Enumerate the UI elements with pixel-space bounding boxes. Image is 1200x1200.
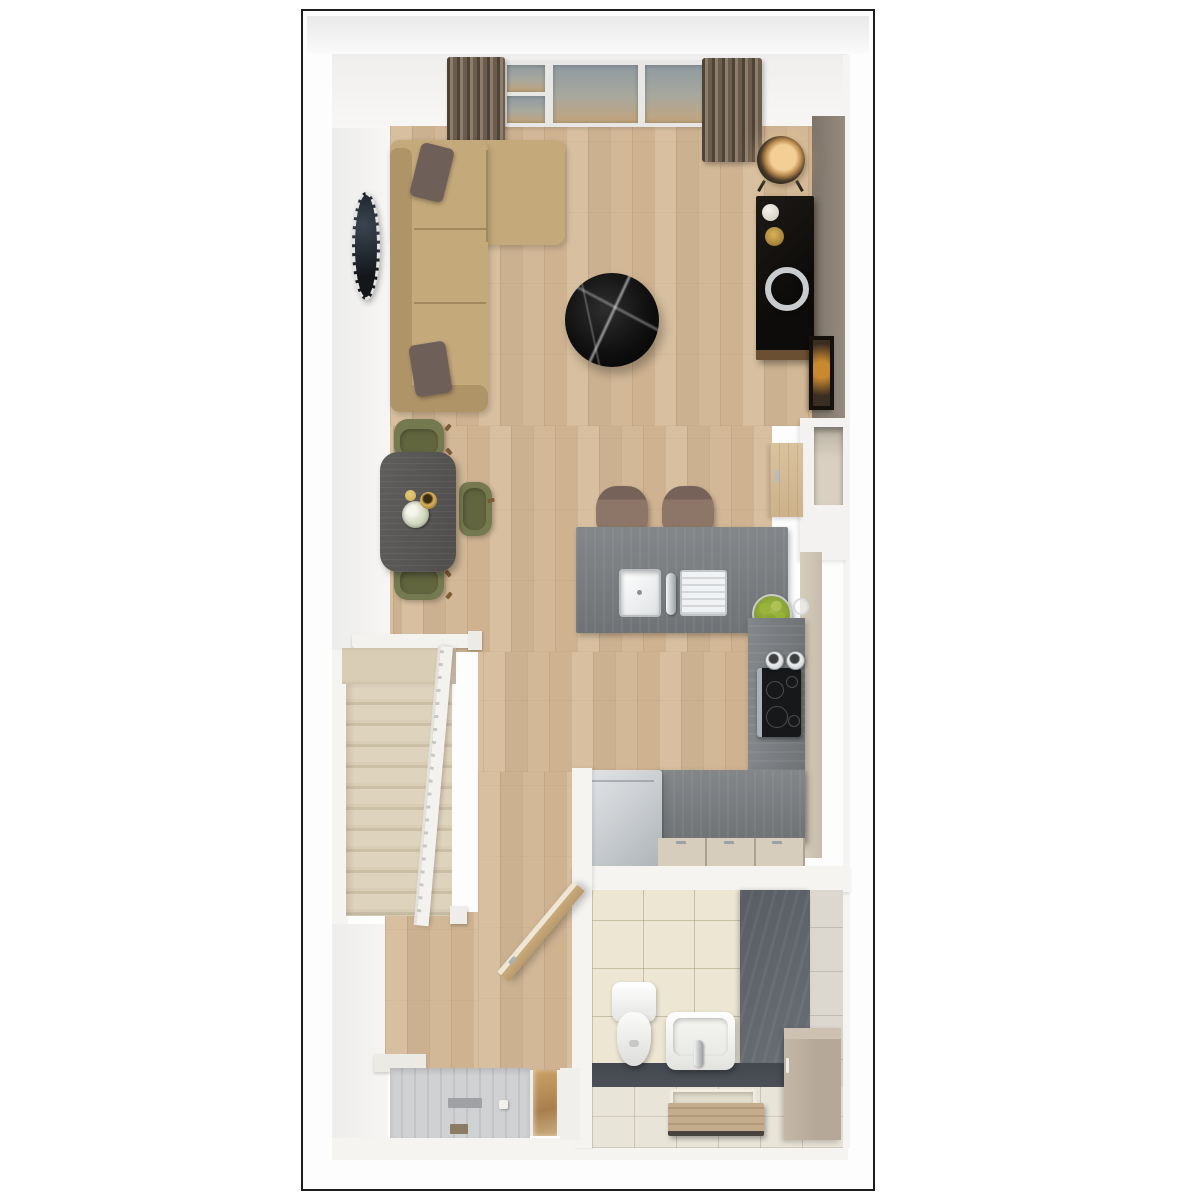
duckboard-mat — [668, 1103, 764, 1136]
toilet-flush-button — [629, 1040, 639, 1047]
sink-drainer — [680, 570, 727, 616]
cabinet-handle — [724, 841, 734, 844]
hob-burner — [766, 706, 788, 728]
throw-pillow — [408, 340, 453, 397]
hob-burner — [788, 715, 800, 727]
floor-lamp — [757, 136, 805, 184]
decor-ring — [765, 267, 809, 311]
washing-machine-lid-seam — [590, 780, 654, 782]
stair-rail-top — [352, 634, 480, 648]
door-handle — [508, 956, 517, 965]
sofa-cushion-seam — [414, 228, 486, 230]
sofa-backrest — [390, 148, 412, 402]
washbasin-tap — [694, 1040, 703, 1067]
mat-inset — [450, 1124, 468, 1134]
cabinet-handle — [676, 841, 686, 844]
mat-object — [499, 1100, 508, 1109]
window-pane — [507, 96, 545, 123]
curtain-right — [702, 58, 762, 162]
water-glass — [793, 598, 809, 615]
toilet-seat — [617, 1012, 651, 1066]
glazed-side-panel — [530, 1070, 560, 1136]
coffee-table — [565, 273, 659, 367]
newel-post — [450, 906, 467, 924]
bathroom-wall-top — [572, 866, 850, 892]
cabinet-handle — [775, 470, 779, 483]
washing-machine — [584, 770, 662, 868]
wall-mirror — [352, 192, 380, 300]
sofa-cushion-seam — [486, 150, 488, 242]
dining-chair-seat — [400, 569, 438, 594]
sofa-cushion-seam — [414, 302, 486, 304]
kitchen-floor — [478, 652, 750, 772]
sink-drain — [637, 590, 642, 595]
hob-burner — [766, 681, 784, 699]
vanity-handle — [786, 1058, 789, 1073]
top-wall-shadow-band — [307, 16, 869, 54]
wall-left-entry — [332, 924, 388, 1150]
wall-niche — [814, 427, 843, 505]
sink-tap — [666, 573, 676, 615]
newel-post — [468, 631, 482, 650]
decor-disc-gold — [765, 227, 784, 246]
floorplan-scene — [0, 0, 1200, 1200]
kitchen-counter-bottom — [655, 770, 805, 840]
window-pane — [507, 65, 545, 92]
entry-door-frame — [560, 1068, 580, 1140]
decor-disc — [762, 204, 779, 221]
window-pane — [553, 65, 638, 123]
gold-cup — [420, 492, 437, 509]
vanity-top — [784, 1028, 841, 1039]
vanity-unit — [784, 1028, 841, 1140]
leaning-picture — [809, 336, 834, 410]
hallway-floor-lower — [385, 912, 478, 1072]
cabinet-handle — [772, 841, 782, 844]
media-console-edge — [756, 350, 814, 360]
mat-inset — [448, 1098, 482, 1108]
cooking-pot — [786, 651, 805, 670]
small-dish — [405, 490, 416, 501]
hob-burner — [786, 676, 798, 688]
cooking-pot — [765, 651, 784, 670]
dining-chair-seat — [463, 488, 486, 530]
